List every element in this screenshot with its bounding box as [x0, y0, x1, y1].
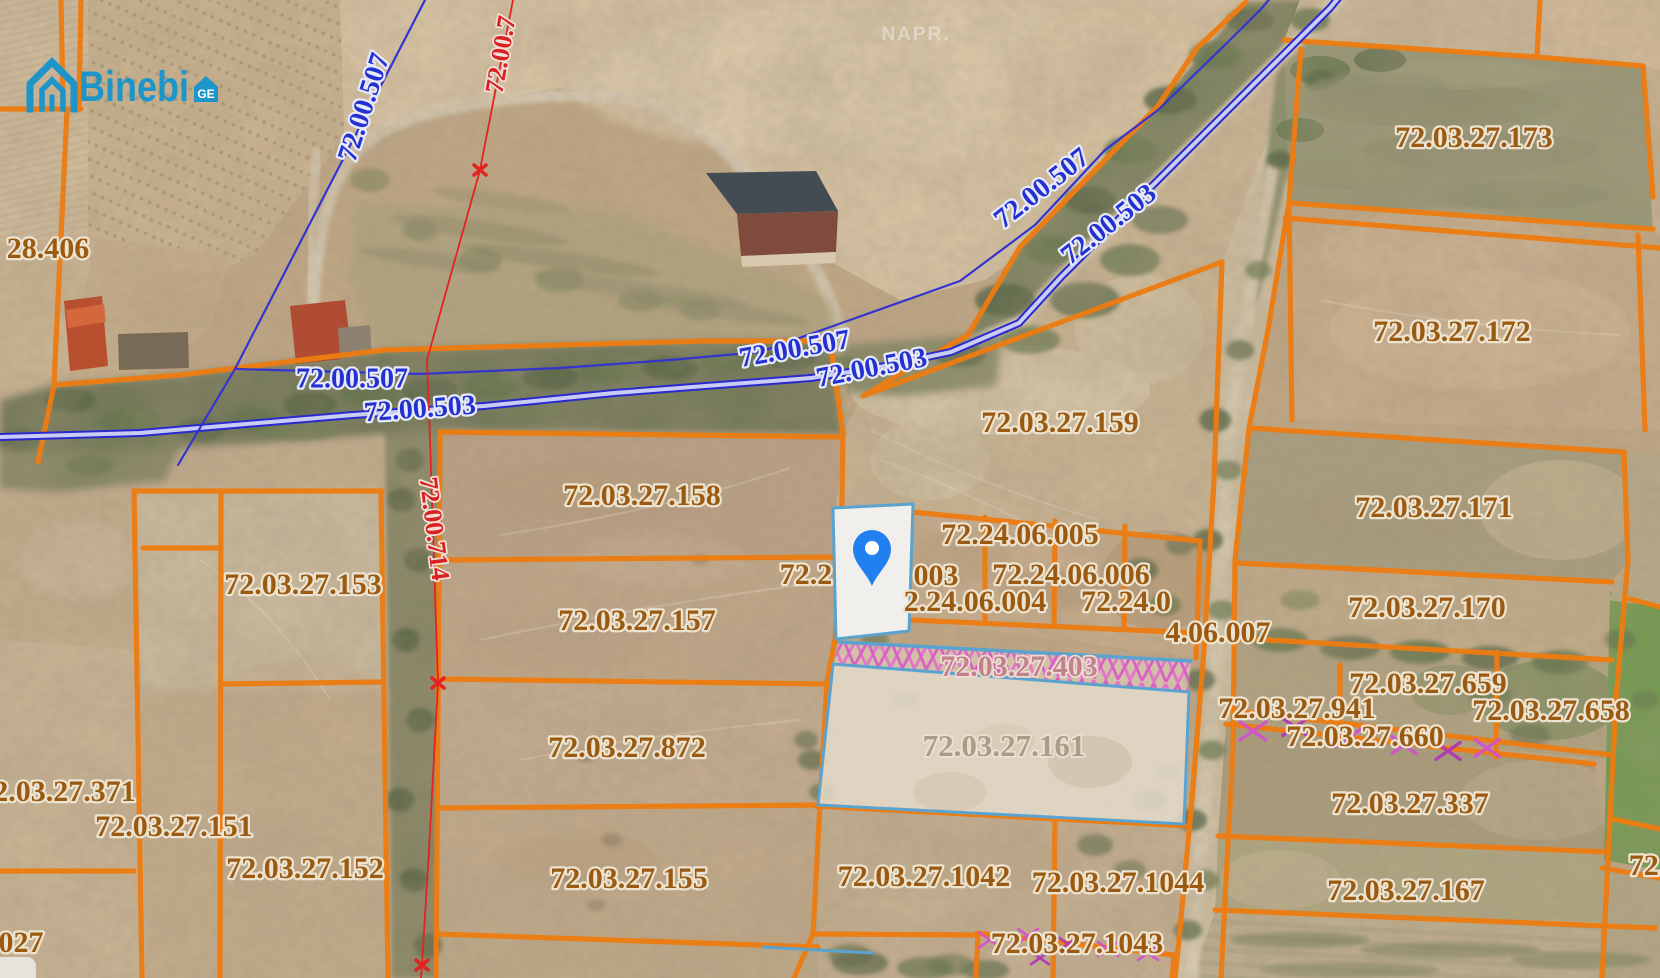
- svg-text:72.03.27.170: 72.03.27.170: [1348, 591, 1506, 624]
- svg-text:72.03.27.1042: 72.03.27.1042: [838, 860, 1011, 893]
- svg-text:027: 027: [0, 926, 44, 959]
- svg-text:72.03.27.172: 72.03.27.172: [1373, 315, 1531, 348]
- svg-text:72.03.27.1043: 72.03.27.1043: [991, 927, 1164, 960]
- svg-text:72.24.0: 72.24.0: [1081, 585, 1171, 618]
- svg-text:72.03.27.403: 72.03.27.403: [940, 650, 1098, 683]
- svg-text:2.24.06.004: 2.24.06.004: [904, 585, 1047, 618]
- svg-text:72.03.27.337: 72.03.27.337: [1331, 787, 1489, 820]
- svg-text:72.03.27.658: 72.03.27.658: [1472, 694, 1630, 727]
- svg-text:72.03.27.173: 72.03.27.173: [1395, 121, 1553, 154]
- svg-text:72.03.27.155: 72.03.27.155: [550, 862, 708, 895]
- svg-text:72.03.27.161: 72.03.27.161: [923, 728, 1086, 763]
- svg-text:72.2: 72.2: [780, 558, 833, 591]
- svg-text:4.06.007: 4.06.007: [1166, 616, 1271, 649]
- svg-text:72.03.27.151: 72.03.27.151: [95, 810, 253, 843]
- svg-text:72.03.27.157: 72.03.27.157: [558, 604, 716, 637]
- svg-text:72.00.507: 72.00.507: [296, 363, 408, 394]
- svg-text:72.03.27.171: 72.03.27.171: [1355, 491, 1513, 524]
- svg-text:Binebi: Binebi: [79, 63, 189, 111]
- svg-text:72.0: 72.0: [1629, 849, 1660, 882]
- svg-text:72.03.27.159: 72.03.27.159: [981, 406, 1139, 439]
- svg-text:72.03.27.872: 72.03.27.872: [548, 731, 706, 764]
- svg-text:GE: GE: [197, 87, 214, 101]
- svg-text:72.03.27.660: 72.03.27.660: [1286, 720, 1444, 753]
- svg-text:72.24.06.005: 72.24.06.005: [941, 518, 1099, 551]
- svg-text:72.03.27.167: 72.03.27.167: [1327, 874, 1485, 907]
- svg-text:72.03.27.1044: 72.03.27.1044: [1032, 866, 1205, 899]
- svg-text:NAPR.: NAPR.: [881, 24, 950, 45]
- svg-text:72.03.27.152: 72.03.27.152: [226, 852, 384, 885]
- svg-text:72.03.27.371: 72.03.27.371: [0, 775, 136, 808]
- svg-text:28.406: 28.406: [7, 232, 90, 265]
- svg-text:72.03.27.158: 72.03.27.158: [563, 479, 721, 512]
- svg-text:72.03.27.153: 72.03.27.153: [224, 568, 382, 601]
